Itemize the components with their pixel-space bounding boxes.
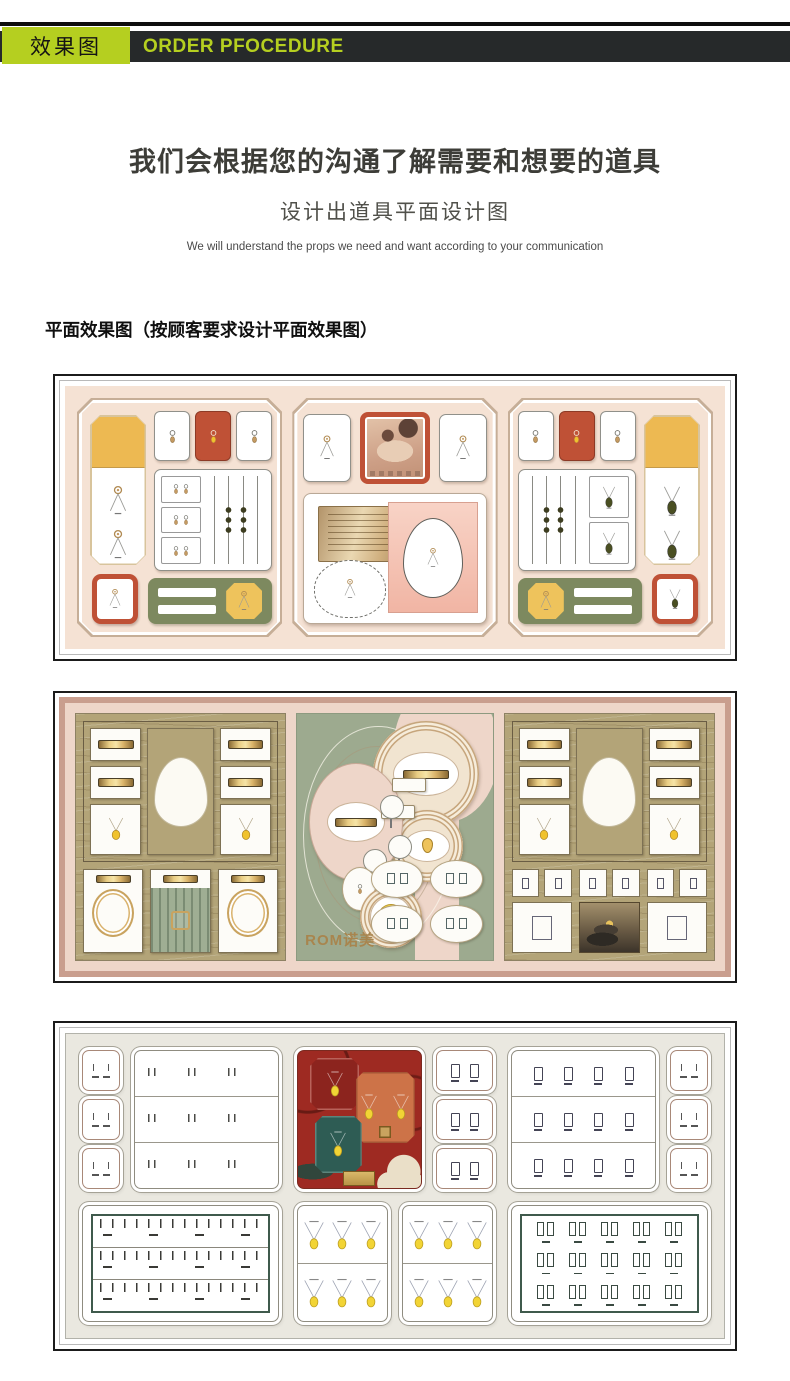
- left-bottom-row: [83, 869, 278, 953]
- slot-mark: [459, 918, 467, 929]
- earring-card: [236, 411, 272, 461]
- tray1-center-panel: [292, 398, 497, 637]
- yellow-necklace-icon: [301, 1220, 327, 1250]
- earring-pair-card: [161, 476, 201, 503]
- necklace-row: [298, 1264, 387, 1321]
- slot-dashes: [680, 1076, 698, 1078]
- mini-card-pair: [647, 869, 707, 897]
- gold-ring-icon: [92, 889, 134, 937]
- earring-icon: [167, 429, 178, 444]
- bangle-card: [220, 766, 271, 799]
- earring-oval-card: [371, 860, 424, 898]
- leaf-pendant-icon: [660, 484, 684, 518]
- tray1-center-panel-surface: [297, 403, 492, 632]
- header-badge-label: 效果图: [30, 31, 102, 61]
- bangle-oval: [327, 802, 385, 842]
- center-bottom-row: [293, 1201, 498, 1326]
- intro-heading: 我们会根据您的沟通了解需要和想要的道具: [0, 140, 790, 179]
- earring-icon: [182, 545, 190, 557]
- earring-row: [135, 1097, 278, 1143]
- ring-box-card: [512, 902, 572, 953]
- necklace-row: [403, 1206, 492, 1264]
- necklace-tall-card-face: [92, 417, 145, 564]
- gold-bangle: [656, 740, 692, 749]
- yellow-necklace-icon: [464, 1220, 490, 1250]
- rendering-image-3[interactable]: [53, 1021, 737, 1351]
- gold-bangle: [96, 875, 131, 883]
- gold-bangle: [527, 778, 563, 787]
- earring-oval-grid: [371, 860, 483, 943]
- pink-display-board: [388, 502, 478, 613]
- yellow-necklace-icon: [358, 1278, 384, 1308]
- header-top-rule: [0, 22, 790, 26]
- mini-card-pair: [579, 869, 639, 897]
- ring-slot-box: [436, 1099, 493, 1140]
- jewelry-stones-photo: [579, 902, 639, 953]
- slot-mark: [446, 918, 454, 929]
- ring-mini-card: [647, 869, 675, 897]
- pendant-mini-card: [589, 522, 629, 564]
- earring-mini-card: [82, 1148, 120, 1189]
- yellow-pendant-icon: [323, 1070, 347, 1098]
- pendant-card-face: [97, 579, 133, 619]
- pair-row: [522, 1216, 697, 1248]
- earring-mini-card: [82, 1099, 120, 1140]
- hook-board-inner: [91, 1214, 270, 1313]
- ring-and-pendant-panel: [518, 469, 636, 571]
- leaf-pendant-icon: [600, 531, 618, 556]
- curtain-panel: [151, 888, 209, 952]
- yellow-necklace-icon: [358, 1220, 384, 1250]
- necklace-row: [403, 1264, 492, 1321]
- hook-marks: [93, 1162, 109, 1169]
- gold-necklace-icon: [533, 816, 555, 842]
- earring-pair-slot: [665, 1253, 682, 1274]
- header-bar-title: ORDER PFOCEDURE: [143, 31, 344, 62]
- mini-card-pair: [512, 869, 572, 897]
- ring-slot-box: [436, 1148, 493, 1189]
- pendant-slot-panel: [511, 1050, 656, 1189]
- brand-logo: ROM诺美: [305, 929, 375, 950]
- yellow-necklace-icon: [406, 1278, 432, 1308]
- green-display-tray: [518, 578, 642, 624]
- rendering-image-2[interactable]: ROM诺美: [53, 691, 737, 983]
- page-header: ORDER PFOCEDURE 效果图: [0, 0, 790, 66]
- gold-bangle: [163, 875, 198, 883]
- pendant-card: [90, 804, 141, 855]
- earring-pair-slot: [633, 1285, 650, 1306]
- pendant-card: [519, 804, 570, 855]
- round-pedestal: [379, 795, 405, 831]
- slot-mark: [446, 873, 454, 884]
- slot-mark: [400, 873, 408, 884]
- slot-dashes: [680, 1125, 698, 1127]
- rendering-3-inner-frame: [59, 1027, 731, 1345]
- earring-card: [600, 411, 636, 461]
- earring-pair-slot: [633, 1222, 650, 1243]
- tray2-right-panel: [504, 713, 715, 961]
- earring-pair-slot: [569, 1222, 586, 1243]
- earring-icon: [172, 483, 180, 495]
- ring-box-card: [647, 902, 707, 953]
- card-column: [90, 728, 141, 855]
- ring-box-column: [432, 1046, 497, 1193]
- pendant-octagon-card: [528, 583, 564, 619]
- slot-mark: [470, 1064, 479, 1078]
- slot-mark: [625, 1159, 634, 1173]
- hook-row: [93, 1216, 268, 1248]
- tray3-center-section: [293, 1046, 498, 1326]
- slot-mark: [534, 1113, 543, 1127]
- earring-mini-card: [670, 1099, 708, 1140]
- tall-card-amber-header: [645, 417, 698, 468]
- necklace-tall-card: [90, 415, 146, 565]
- intro-description-en: We will understand the props we need and…: [0, 241, 790, 253]
- green-display-tray: [148, 578, 272, 624]
- ring-mini-card: [679, 869, 707, 897]
- header-badge: 效果图: [2, 27, 130, 64]
- tray1-left-panel-surface: [82, 403, 277, 632]
- card-column: [220, 728, 271, 855]
- earring-row: [135, 1051, 278, 1097]
- earring-pair-slot: [633, 1253, 650, 1274]
- bangle-card: [519, 766, 570, 799]
- slot-dashes: [92, 1076, 110, 1078]
- right-bottom-row: [507, 1201, 712, 1326]
- pendant-card: [220, 804, 271, 855]
- slot-mark: [564, 1113, 573, 1127]
- yellow-necklace-icon: [435, 1278, 461, 1308]
- earring-mini-card: [670, 1050, 708, 1091]
- left-top-row: [78, 1046, 283, 1193]
- slot-mark: [451, 1113, 460, 1127]
- earring-icon: [249, 429, 260, 444]
- pendant-card-face: [657, 579, 693, 619]
- gold-bangle: [228, 740, 264, 749]
- bangle-slot: [574, 588, 632, 597]
- pendant-card: [303, 414, 351, 482]
- pendant-necklace-icon: [453, 434, 473, 462]
- earring-card-red: [559, 411, 595, 461]
- earring-card: [518, 411, 554, 461]
- pendant-mini-card: [589, 476, 629, 518]
- tall-card-amber-header: [92, 417, 145, 468]
- pendant-card: [439, 414, 487, 482]
- right-bottom-row: [512, 869, 707, 953]
- hook-marks: [681, 1113, 697, 1120]
- necklace-bust: [154, 757, 208, 827]
- earring-pair-slot: [537, 1222, 554, 1243]
- gold-seal-icon: [379, 1126, 391, 1138]
- earring-icon: [356, 883, 364, 895]
- earring-row: [135, 1143, 278, 1188]
- ring-bar-rack: [525, 476, 583, 564]
- left-bottom-row: [78, 1201, 283, 1326]
- right-top-row: [507, 1046, 712, 1193]
- earring-icon: [182, 514, 190, 526]
- hook-row: [93, 1280, 268, 1311]
- slot-mark: [625, 1067, 634, 1081]
- earring-icon: [182, 483, 190, 495]
- slot-dashes: [92, 1125, 110, 1127]
- bangle-slot-bars: [158, 588, 216, 614]
- earring-icon: [172, 545, 180, 557]
- earring-pair-slot: [601, 1222, 618, 1243]
- yellow-pendant-icon: [389, 1093, 413, 1121]
- hook-marks: [93, 1064, 109, 1071]
- gold-bangle: [527, 740, 563, 749]
- gold-bangle: [98, 740, 134, 749]
- earring-mini-column: [161, 476, 201, 564]
- rendering-1-inner-frame: [59, 380, 731, 655]
- pendant-card-red-frame: [92, 574, 138, 624]
- bangle-card: [519, 728, 570, 761]
- tray1-right-panel-surface: [513, 403, 708, 632]
- earring-pair-slot: [537, 1285, 554, 1306]
- earring-and-ring-panel: [154, 469, 272, 571]
- yellow-necklace-icon: [301, 1278, 327, 1308]
- tray1-right-panel: [508, 398, 713, 637]
- bangle-card: [649, 728, 700, 761]
- hook-board-panel: [82, 1205, 279, 1322]
- pair-row: [522, 1248, 697, 1280]
- earring-pair-slot: [537, 1253, 554, 1274]
- ring-beads: [225, 505, 232, 535]
- left-top-display: [83, 721, 278, 862]
- tray2-left-panel: [75, 713, 286, 961]
- gold-bangle: [228, 778, 264, 787]
- earring-icon: [172, 514, 180, 526]
- bangle-slot: [158, 588, 216, 597]
- slot-mark: [564, 1067, 573, 1081]
- tray2-center-panel: ROM诺美: [296, 713, 493, 961]
- egg-display: [403, 518, 463, 598]
- pendant-necklace-icon: [538, 590, 554, 612]
- bangle-slot: [158, 605, 216, 614]
- tray3-right-section: [507, 1046, 712, 1326]
- tray3-left-section: [78, 1046, 283, 1326]
- center-top-row: [303, 411, 486, 485]
- intro-subheading: 设计出道具平面设计图: [0, 196, 790, 226]
- slot-mark: [470, 1162, 479, 1176]
- earring-pair-slot: [569, 1285, 586, 1306]
- necklace-row: [298, 1206, 387, 1264]
- tray1-left-panel-border: [79, 400, 280, 635]
- gold-bangle: [335, 818, 377, 827]
- pendant-octagon-card: [226, 583, 262, 619]
- leaf-pendant-icon: [660, 528, 684, 562]
- slot-mark: [625, 1113, 634, 1127]
- teal-octagon-pendant: [315, 1116, 362, 1174]
- necklace-panel: [297, 1205, 388, 1322]
- earring-icon: [530, 429, 541, 444]
- necklace-tall-card-face: [645, 417, 698, 564]
- bangle-card: [90, 728, 141, 761]
- ring-mini-card: [579, 869, 607, 897]
- tray1-center-panel-border: [294, 400, 495, 635]
- slot-row: [512, 1097, 655, 1143]
- hook-row: [93, 1248, 268, 1280]
- ring-slot: [532, 916, 552, 940]
- card-column: [519, 728, 570, 855]
- gold-tag: [343, 1171, 375, 1186]
- earring-pair-card: [161, 537, 201, 564]
- tray1-right-panel-border: [510, 400, 711, 635]
- ring-card: [218, 869, 278, 953]
- earring-pair-panel: [511, 1205, 708, 1322]
- slot-mark: [400, 918, 408, 929]
- gold-bangle: [98, 778, 134, 787]
- ring-box-group: [647, 869, 707, 953]
- ring-slot-box: [436, 1050, 493, 1091]
- tray1-left-panel: [77, 398, 282, 637]
- leaf-pendant-icon: [600, 485, 618, 510]
- earring-oval-card: [371, 905, 424, 943]
- slot-mark: [387, 918, 395, 929]
- slot-mark: [451, 1064, 460, 1078]
- tray-design-2: ROM诺美: [59, 697, 731, 977]
- earring-pair-slot: [601, 1285, 618, 1306]
- gold-bangle: [656, 778, 692, 787]
- ring-bar-rack: [207, 476, 265, 564]
- pendant-necklace-icon: [342, 578, 358, 600]
- ring-mini-card: [544, 869, 572, 897]
- yellow-pendant-icon: [326, 1130, 350, 1158]
- earring-pair-slot: [601, 1253, 618, 1274]
- pendant-necklace-icon: [425, 547, 441, 569]
- photo-group: [579, 869, 639, 953]
- shell-display: [314, 560, 386, 618]
- bangle-slot-bars: [574, 588, 632, 614]
- earring-mini-card: [670, 1148, 708, 1189]
- slot-row: [512, 1143, 655, 1188]
- slot-mark: [534, 1067, 543, 1081]
- necklace-bust-card: [147, 728, 213, 855]
- ring-slot: [667, 916, 687, 940]
- gold-emblem-icon: [171, 911, 190, 930]
- card-column: [649, 728, 700, 855]
- curtain-card: [150, 869, 210, 953]
- earring-card: [154, 411, 190, 461]
- orange-octagon-pendants: [356, 1072, 415, 1143]
- earring-oval-card: [430, 905, 483, 943]
- hook-marks: [93, 1113, 109, 1120]
- earring-pair-slot: [665, 1222, 682, 1243]
- mini-card-column: [666, 1046, 712, 1193]
- yellow-necklace-icon: [329, 1278, 355, 1308]
- section-label: 平面效果图（按顾客要求设计平面效果图）: [45, 317, 790, 342]
- gold-ring-icon: [227, 889, 269, 937]
- earring-icon: [571, 429, 582, 444]
- pendant-necklace-icon: [106, 528, 130, 562]
- tray-design-1: [65, 386, 725, 649]
- pendant-pair: [357, 1093, 413, 1121]
- slot-mark: [594, 1159, 603, 1173]
- pendant-necklace-icon: [107, 588, 123, 610]
- pendant-necklace-icon: [106, 484, 130, 518]
- ring-beads: [543, 505, 550, 535]
- intro-section: 我们会根据您的沟通了解需要和想要的道具 设计出道具平面设计图 We will u…: [0, 66, 790, 253]
- gold-drop-icon: [422, 838, 433, 853]
- pair-row: [522, 1279, 697, 1311]
- earring-oval-card: [430, 860, 483, 898]
- necklace-panel: [402, 1205, 493, 1322]
- necklace-tall-card: [644, 415, 700, 565]
- center-top-row: [293, 1046, 498, 1193]
- pendant-card-red-frame: [652, 574, 698, 624]
- slot-mark: [470, 1113, 479, 1127]
- rendering-image-1[interactable]: [53, 374, 737, 661]
- gold-necklace-icon: [663, 816, 685, 842]
- slot-mark: [459, 873, 467, 884]
- bangle-slot: [574, 605, 632, 614]
- ring-beads: [557, 505, 564, 535]
- right-top-display: [512, 721, 707, 862]
- hook-marks: [681, 1064, 697, 1071]
- model-photo: [360, 412, 429, 484]
- slot-mark: [594, 1067, 603, 1081]
- earring-pair-slot: [569, 1253, 586, 1274]
- slot-mark: [387, 873, 395, 884]
- pendant-mini-column: [589, 476, 629, 564]
- earring-card-red: [195, 411, 231, 461]
- pendant-necklace-icon: [317, 434, 337, 462]
- hook-marks: [681, 1162, 697, 1169]
- slot-mark: [594, 1113, 603, 1127]
- pendant-card: [649, 804, 700, 855]
- pendant-necklace-icon: [236, 590, 252, 612]
- leaf-pendant-icon: [667, 588, 683, 610]
- bangle-card: [649, 766, 700, 799]
- ring-beads: [240, 505, 247, 535]
- necklace-bust-card: [576, 728, 642, 855]
- yellow-pendant-icon: [357, 1093, 381, 1121]
- ring-box-group: [512, 869, 572, 953]
- slot-mark: [564, 1159, 573, 1173]
- festive-illustration-card: [297, 1050, 422, 1189]
- earring-mini-card: [82, 1050, 120, 1091]
- ring-mini-card: [612, 869, 640, 897]
- earring-pair-card: [161, 507, 201, 534]
- ring-mini-card: [512, 869, 540, 897]
- yellow-necklace-icon: [406, 1220, 432, 1250]
- gold-necklace-icon: [105, 816, 127, 842]
- earring-pair-inner: [520, 1214, 699, 1313]
- bangle-card: [220, 728, 271, 761]
- earring-row-panel: [134, 1050, 279, 1189]
- tray-design-3: [65, 1033, 725, 1339]
- center-main-panel: [303, 493, 486, 624]
- slot-dashes: [92, 1174, 110, 1176]
- price-tag: [392, 778, 426, 792]
- slot-dashes: [680, 1174, 698, 1176]
- yellow-necklace-icon: [435, 1220, 461, 1250]
- earring-card-row: [518, 411, 636, 461]
- gold-bangle: [231, 875, 266, 883]
- yellow-necklace-icon: [464, 1278, 490, 1308]
- gold-necklace-icon: [235, 816, 257, 842]
- ring-card: [83, 869, 143, 953]
- earring-icon: [612, 429, 623, 444]
- earring-card-row: [154, 411, 272, 461]
- slot-row: [512, 1051, 655, 1097]
- slot-mark: [534, 1159, 543, 1173]
- bangle-card: [90, 766, 141, 799]
- necklace-bust: [582, 757, 636, 827]
- mini-card-column: [78, 1046, 124, 1193]
- red-octagon-pendant: [310, 1058, 359, 1110]
- earring-pair-slot: [665, 1285, 682, 1306]
